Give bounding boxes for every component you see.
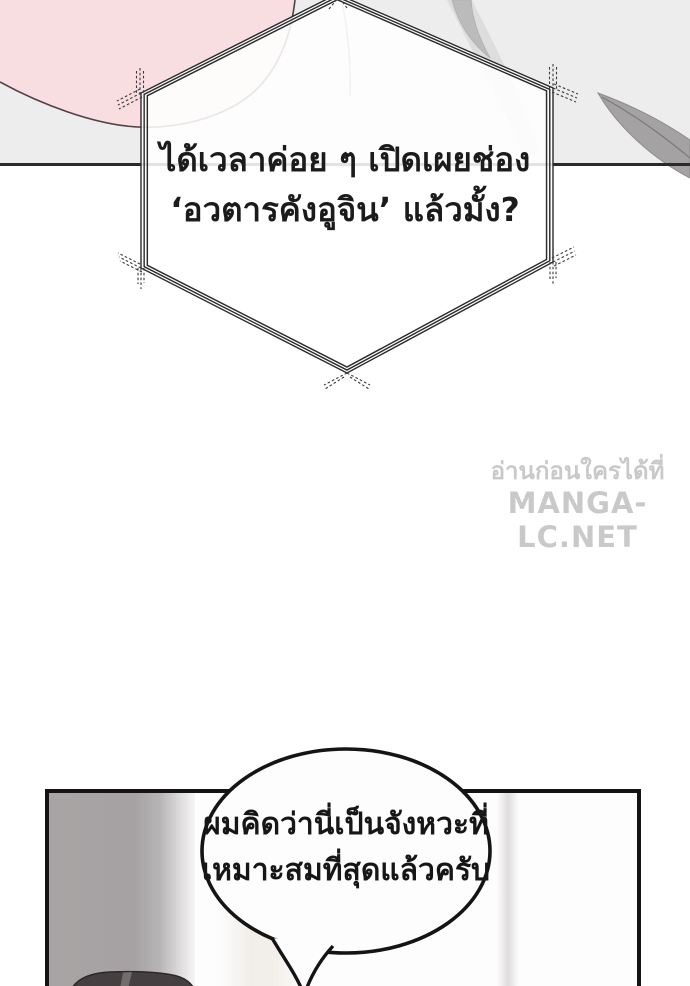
oval-bubble-text: ผมคิดว่านี่เป็นจังหวะที่ เหมาะสมที่สุดแล… [201, 802, 491, 894]
oval-bubble-line1: ผมคิดว่านี่เป็นจังหวะที่ [201, 802, 491, 848]
site-watermark: อ่านก่อนใครได้ที่ MANGA-LC.NET [460, 456, 690, 554]
oval-bubble-tail [272, 938, 333, 986]
watermark-site-name: MANGA-LC.NET [460, 486, 690, 554]
watermark-thai-line: อ่านก่อนใครได้ที่ [460, 456, 690, 486]
head-silhouette [70, 972, 197, 986]
comic-page: ได้เวลาค่อย ๆ เปิดเผยช่อง ‘อวตารคังอูจิน… [0, 0, 690, 986]
oval-bubble-line2: เหมาะสมที่สุดแล้วครับ [201, 848, 491, 894]
hex-bubble-text: ได้เวลาค่อย ๆ เปิดเผยช่อง ‘อวตารคังอูจิน… [145, 135, 545, 235]
hex-bubble-line1: ได้เวลาค่อย ๆ เปิดเผยช่อง [145, 135, 545, 185]
hex-bubble-line2: ‘อวตารคังอูจิน’ แล้วมั้ง? [145, 185, 545, 235]
